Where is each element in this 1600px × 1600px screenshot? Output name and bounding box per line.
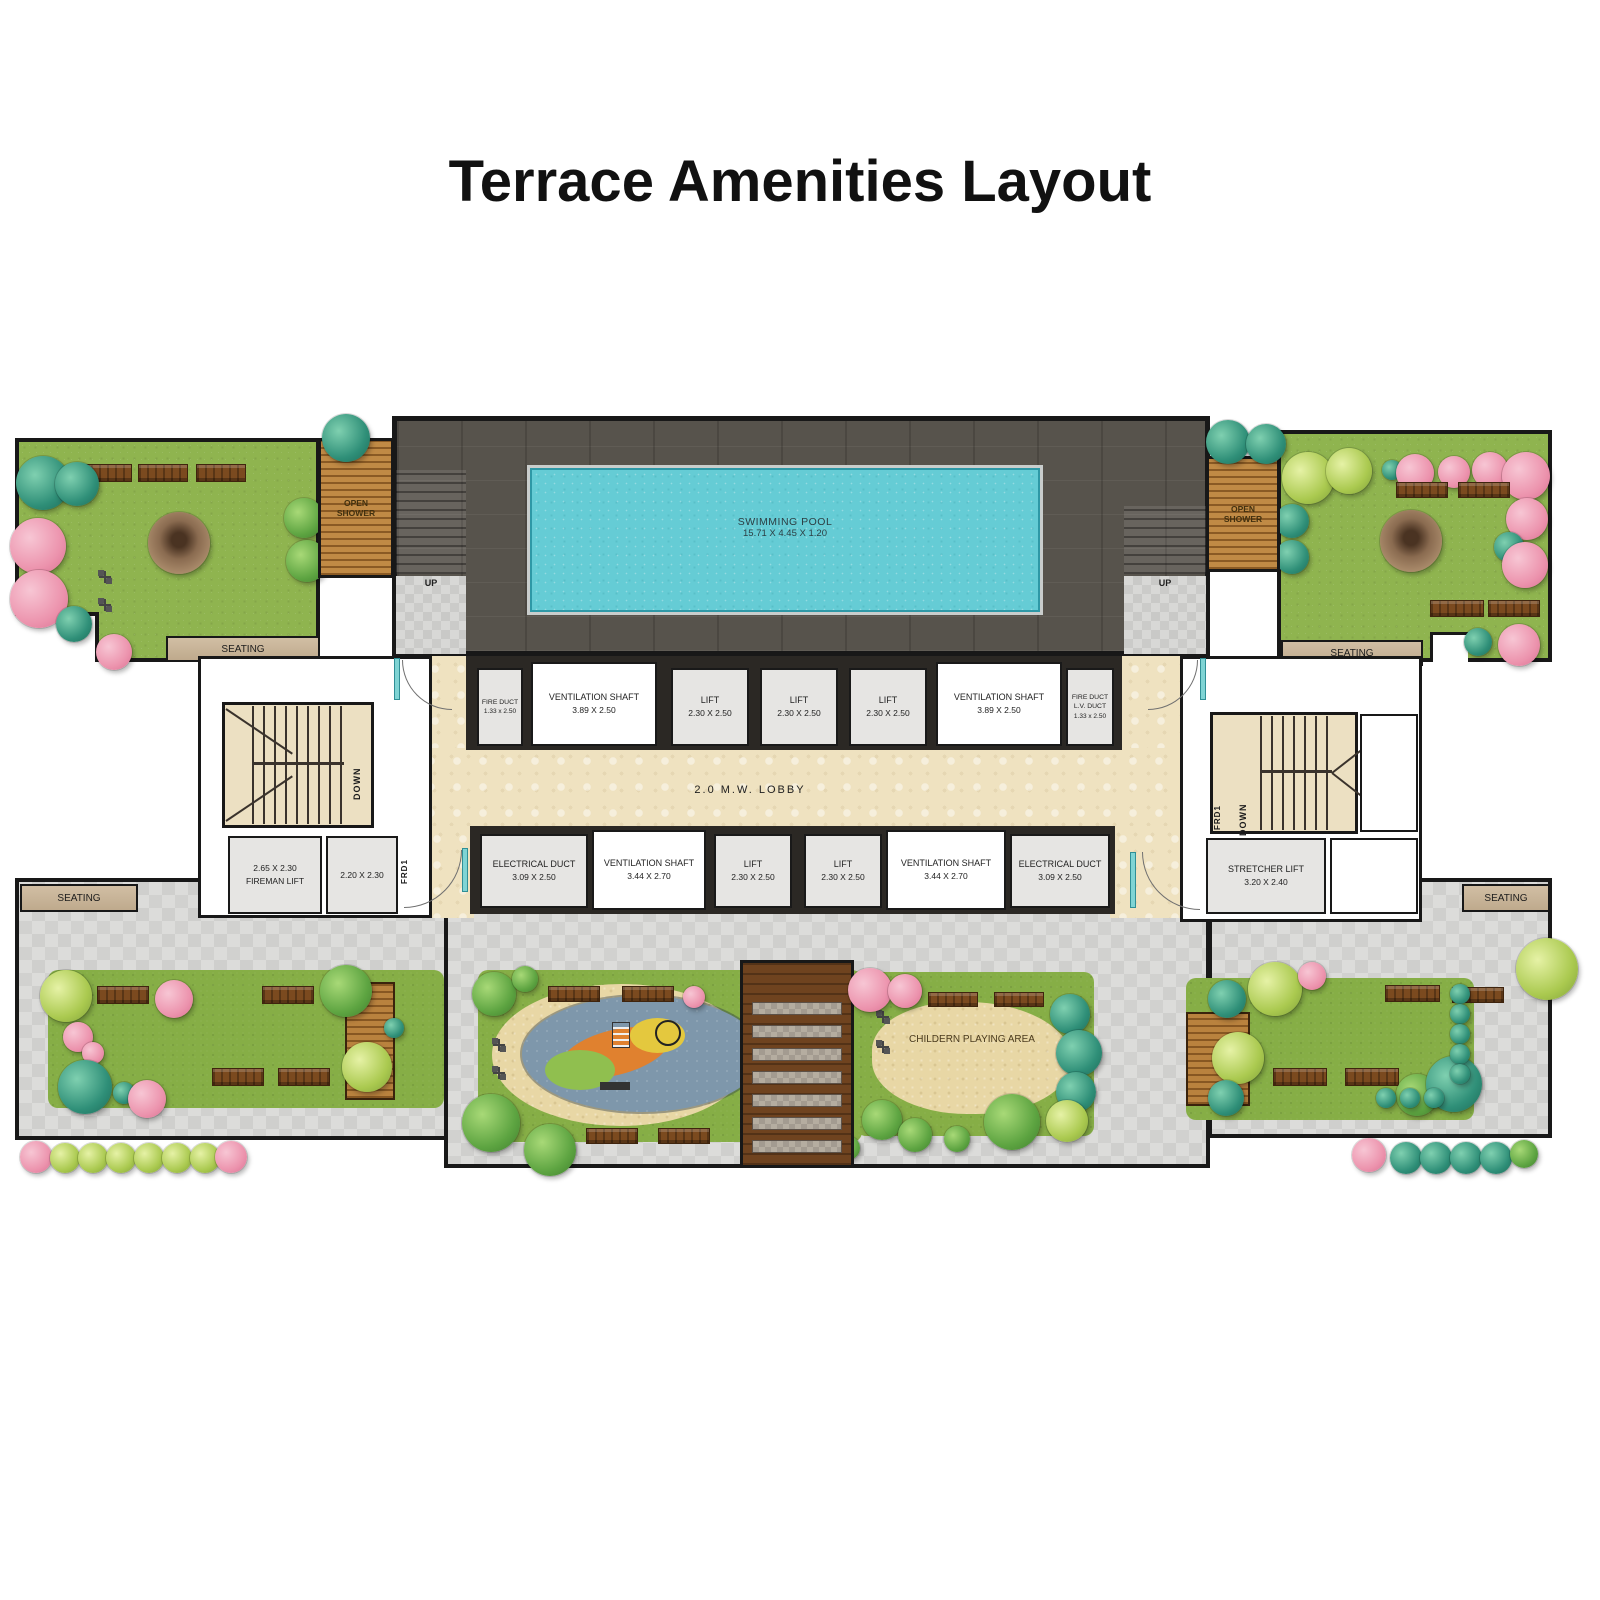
page-title: Terrace Amenities Layout [0,148,1600,215]
tree-icon [472,972,516,1016]
hedge-shrub-icon [134,1143,164,1173]
seating-label: SEATING [1484,893,1527,904]
room-name: LIFT [790,694,809,708]
bench [658,1128,710,1144]
service-room-right [1360,714,1418,832]
hedge-shrub-icon [1450,1044,1470,1064]
service-room-right [1330,838,1418,914]
room-name: L.V. DUCT [1074,702,1106,712]
pink-tree-icon [155,980,193,1018]
lamp-icon [876,1040,890,1054]
tree-icon [40,970,92,1022]
hedge-shrub-icon [1424,1088,1444,1108]
room-dims: 2.30 X 2.50 [821,871,864,884]
bench [1385,985,1440,1002]
tree-icon [58,1060,112,1114]
tree-icon [512,966,538,992]
room-dims: 2.30 X 2.50 [777,707,820,720]
pink-tree-icon [848,968,892,1012]
frd-label-right: FRD1 [1213,786,1222,830]
bench [262,986,314,1004]
seating-strip-bottom-right: SEATING [1462,884,1550,912]
room-name: LIFT [744,858,763,872]
hedge-shrub-icon [1510,1140,1538,1168]
tree-icon [342,1042,392,1092]
room-name: LIFT [879,694,898,708]
room-name: FIRE DUCT [1072,693,1108,703]
tree-icon [1275,504,1309,538]
up-label-left: UP [396,578,466,588]
hedge-shrub-icon [1352,1138,1386,1172]
tree-icon [1212,1032,1264,1084]
pink-tree-icon [96,634,132,670]
wooden-steps [740,960,854,1168]
open-shower-label: OPEN [344,498,368,508]
stair-treads [1260,716,1332,830]
stairs-up-left [396,470,466,574]
seating-label: SEATING [57,893,100,904]
tree-icon [1046,1100,1088,1142]
room-name: VENTILATION SHAFT [549,691,639,705]
gazebo-canopy-icon [1380,510,1442,572]
room-dims: 3.89 X 2.50 [572,704,615,717]
hedge-shrub-icon [20,1141,52,1173]
stair-landing-line [1260,770,1332,773]
bench [138,464,188,482]
pink-tree-icon [1498,624,1540,666]
bench [548,986,600,1002]
room-dims: 2.30 X 2.50 [866,707,909,720]
step-tread [752,1117,842,1130]
hedge-shrub-icon [1450,1024,1470,1044]
room-ventilation-shaft: VENTILATION SHAFT 3.89 X 2.50 [936,662,1062,746]
room-dims: 1.33 x 2.50 [484,707,516,716]
pink-tree-icon [10,518,66,574]
bench [1430,600,1484,617]
hedge-shrub-icon [1450,1064,1470,1084]
room-lift: LIFT 2.30 X 2.50 [714,834,792,908]
tree-icon [1248,962,1302,1016]
room-dims: 3.20 X 2.40 [1244,876,1287,889]
pool-dims: 15.71 X 4.45 X 1.20 [532,528,1038,539]
tree-icon [898,1118,932,1152]
bench [278,1068,330,1086]
bench [212,1068,264,1086]
lobby-label: 2.0 M.W. LOBBY [600,784,900,796]
step-tread [752,1048,842,1061]
room-name: STRETCHER LIFT [1228,863,1304,877]
bench [586,1128,638,1144]
room-ventilation-shaft: VENTILATION SHAFT 3.44 X 2.70 [886,830,1006,910]
pool-label: SWIMMING POOL [532,516,1038,528]
room-dims: 3.09 X 2.50 [1038,871,1081,884]
pink-tree-icon [888,974,922,1008]
lamp-icon [492,1038,506,1052]
step-tread [752,1140,842,1153]
step-tread [752,1094,842,1107]
pink-tree-icon [683,986,705,1008]
hedge-shrub-icon [215,1141,247,1173]
up-label-right: UP [1124,578,1206,588]
open-shower-label: SHOWER [1224,514,1262,524]
tree-icon [462,1094,520,1152]
room-dims: 3.44 X 2.70 [627,870,670,883]
step-tread [752,1002,842,1015]
tree-icon [862,1100,902,1140]
down-label-right: DOWN [1238,780,1248,836]
room-lift: LIFT 2.30 X 2.50 [804,834,882,908]
tree-icon [1206,420,1250,464]
bench [1273,1068,1327,1086]
tree-icon [944,1126,970,1152]
tree-icon [524,1124,576,1176]
tree-icon [322,414,370,462]
room-name: VENTILATION SHAFT [901,857,991,871]
room-fire-lv-duct: FIRE DUCT L.V. DUCT 1.33 x 2.50 [1066,668,1114,746]
plan-notch [1430,632,1468,662]
door-panel [462,848,468,892]
room-name: FIRE DUCT [482,698,518,708]
pink-tree-icon [1298,962,1326,990]
tree-icon [1464,628,1492,656]
room-name: ELECTRICAL DUCT [493,858,576,872]
tree-icon [56,606,92,642]
room-name: LIFT [834,858,853,872]
lamp-icon [98,598,112,612]
tree-icon [1056,1030,1102,1076]
room-lift: LIFT 2.30 X 2.50 [849,668,927,746]
room-dims: 2.30 X 2.50 [688,707,731,720]
play-roundabout [655,1020,681,1046]
stair-landing-line [252,762,344,765]
room-electrical-duct: ELECTRICAL DUCT 3.09 X 2.50 [1010,834,1110,908]
room-dims: 2.20 X 2.30 [340,869,383,882]
lamp-icon [876,1010,890,1024]
door-panel [1130,852,1136,908]
bench [97,986,149,1004]
play-ladder [612,1022,630,1048]
room-lift: LIFT 2.30 X 2.50 [760,668,838,746]
seating-label: SEATING [221,644,264,655]
door-panel [394,658,400,700]
tree-icon [55,462,99,506]
hedge-shrub-icon [162,1143,192,1173]
open-shower-label: OPEN [1231,504,1255,514]
lamp-icon [98,570,112,584]
bench [622,986,674,1002]
hedge-shrub-icon [1400,1088,1420,1108]
room-dims: 2.30 X 2.50 [731,871,774,884]
step-tread [752,1025,842,1038]
room-service-shaft: 2.20 X 2.30 [326,836,398,914]
tree-icon [984,1094,1040,1150]
room-ventilation-shaft: VENTILATION SHAFT 3.44 X 2.70 [592,830,706,910]
swimming-pool: SWIMMING POOL 15.71 X 4.45 X 1.20 [530,468,1040,612]
bench [1396,482,1448,498]
tree-icon [1208,980,1246,1018]
hedge-shrub-icon [50,1143,80,1173]
seating-strip-bottom-left: SEATING [20,884,138,912]
room-name: ELECTRICAL DUCT [1019,858,1102,872]
pink-tree-icon [128,1080,166,1118]
hedge-shrub-icon [1480,1142,1512,1174]
bench [994,992,1044,1007]
hedge-shrub-icon [1450,1142,1482,1174]
gazebo-canopy-icon [148,512,210,574]
lamp-icon [492,1066,506,1080]
room-electrical-duct: ELECTRICAL DUCT 3.09 X 2.50 [480,834,588,908]
tree-icon [320,965,372,1017]
room-dims: 3.89 X 2.50 [977,704,1020,717]
tree-icon [1516,938,1578,1000]
step-tread [752,1071,842,1084]
play-equipment [600,1082,630,1090]
tree-icon [1246,424,1286,464]
room-name: VENTILATION SHAFT [604,857,694,871]
hedge-shrub-icon [106,1143,136,1173]
hedge-shrub-icon [1420,1142,1452,1174]
room-name: VENTILATION SHAFT [954,691,1044,705]
hedge-shrub-icon [1376,1088,1396,1108]
room-dims: 3.09 X 2.50 [512,871,555,884]
tree-icon [1208,1080,1244,1116]
open-shower-label: SHOWER [337,508,375,518]
bench [196,464,246,482]
room-fire-duct: FIRE DUCT 1.33 x 2.50 [477,668,523,746]
bench [928,992,978,1007]
room-dims: 2.65 X 2.30 [253,862,296,875]
room-stretcher-lift: STRETCHER LIFT 3.20 X 2.40 [1206,838,1326,914]
hedge-shrub-icon [1390,1142,1422,1174]
terrace-amenities-plan: Terrace Amenities Layout SEATING SEATING [0,0,1600,1600]
room-name: LIFT [701,694,720,708]
stair-treads [252,706,344,824]
children-sand-area [872,1002,1072,1114]
hedge-shrub-icon [1450,1004,1470,1024]
tree-icon [384,1018,404,1038]
hedge-shrub-icon [78,1143,108,1173]
open-shower-right: OPEN SHOWER [1206,456,1280,572]
hedge-shrub-icon [1450,984,1470,1004]
bench [1345,1068,1399,1086]
room-dims: 1.33 x 2.50 [1074,712,1106,721]
down-label-left: DOWN [352,740,362,800]
stairs-up-right [1124,506,1206,574]
tree-icon [1050,994,1090,1034]
bench [1458,482,1510,498]
children-area-label: CHILDERN PLAYING AREA [872,1034,1072,1045]
room-lift: LIFT 2.30 X 2.50 [671,668,749,746]
room-ventilation-shaft: VENTILATION SHAFT 3.89 X 2.50 [531,662,657,746]
tree-icon [1326,448,1372,494]
door-panel [1200,658,1206,700]
pink-tree-icon [1502,542,1548,588]
tree-icon [1275,540,1309,574]
bench [1488,600,1540,617]
room-name: FIREMAN LIFT [246,875,304,888]
room-dims: 3.44 X 2.70 [924,870,967,883]
room-fireman-lift: 2.65 X 2.30 FIREMAN LIFT [228,836,322,914]
